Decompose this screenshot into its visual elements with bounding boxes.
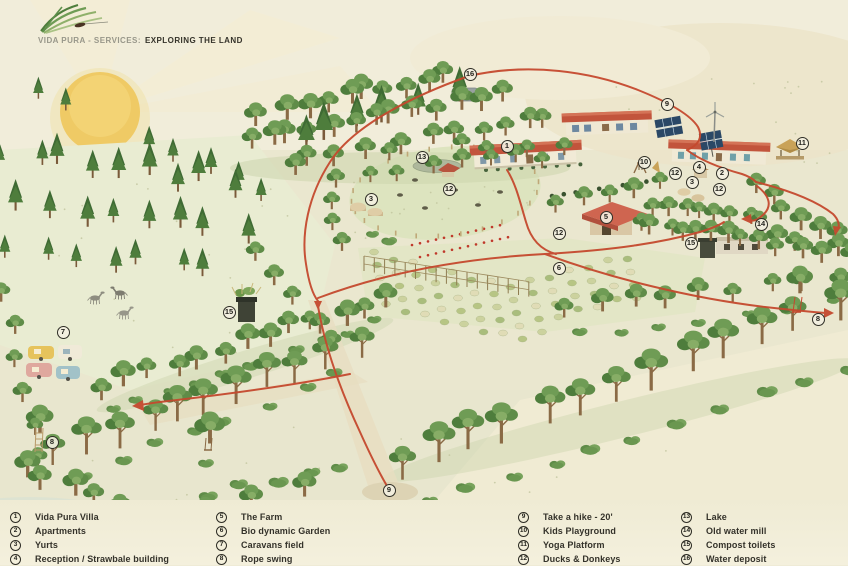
legend-item-11: 11Yoga Platform [518, 538, 621, 552]
legend-item-14: 14Old water mill [681, 524, 776, 538]
legend-number: 10 [518, 526, 529, 537]
legend-number: 16 [681, 554, 692, 565]
map-marker-15: 15 [223, 306, 236, 319]
map-marker-2: 2 [716, 167, 729, 180]
legend-number: 9 [518, 512, 529, 523]
services-building [562, 110, 653, 135]
legend-number: 3 [10, 540, 21, 551]
brand-prefix: VIDA PURA - SERVICES: [38, 36, 141, 45]
legend-label: Ducks & Donkeys [543, 554, 621, 564]
legend-column: 5The Farm6Bio dynamic Garden7Caravans fi… [216, 510, 330, 566]
map-marker-8: 8 [812, 313, 825, 326]
map-marker-10: 10 [638, 156, 651, 169]
legend-label: Apartments [35, 526, 86, 536]
legend-number: 8 [216, 554, 227, 565]
legend-item-4: 4Reception / Strawbale building [10, 552, 169, 566]
legend-label: Bio dynamic Garden [241, 526, 330, 536]
header: VIDA PURA - SERVICES:EXPLORING THE LAND [0, 0, 400, 55]
legend-label: Reception / Strawbale building [35, 554, 169, 564]
legend-item-6: 6Bio dynamic Garden [216, 524, 330, 538]
legend-label: Kids Playground [543, 526, 616, 536]
map-marker-12: 12 [669, 167, 682, 180]
legend-item-12: 12Ducks & Donkeys [518, 552, 621, 566]
map-marker-3: 3 [686, 176, 699, 189]
legend-column: 1Vida Pura Villa2Apartments3Yurts4Recept… [10, 510, 169, 566]
legend-number: 2 [10, 526, 21, 537]
map-marker-4: 4 [693, 161, 706, 174]
map-marker-14: 14 [755, 218, 768, 231]
legend-label: Yurts [35, 540, 58, 550]
brand-title: EXPLORING THE LAND [145, 36, 243, 45]
legend-item-16: 16Water deposit [681, 552, 776, 566]
illustrated-map [0, 0, 848, 565]
legend: 1Vida Pura Villa2Apartments3Yurts4Recept… [0, 510, 848, 565]
legend-number: 13 [681, 512, 692, 523]
legend-label: Lake [706, 512, 727, 522]
map-marker-13: 13 [416, 151, 429, 164]
map-marker-15: 15 [685, 237, 698, 250]
legend-number: 14 [681, 526, 692, 537]
legend-item-7: 7Caravans field [216, 538, 330, 552]
map-marker-9: 9 [383, 484, 396, 497]
map-marker-12: 12 [553, 227, 566, 240]
legend-number: 6 [216, 526, 227, 537]
legend-number: 15 [681, 540, 692, 551]
legend-label: Caravans field [241, 540, 304, 550]
legend-item-10: 10Kids Playground [518, 524, 621, 538]
map-marker-3: 3 [365, 193, 378, 206]
legend-number: 5 [216, 512, 227, 523]
legend-number: 4 [10, 554, 21, 565]
map-marker-5: 5 [600, 211, 613, 224]
map-marker-12: 12 [443, 183, 456, 196]
map-marker-7: 7 [57, 326, 70, 339]
legend-label: The Farm [241, 512, 282, 522]
legend-item-13: 13Lake [681, 510, 776, 524]
legend-item-8: 8Rope swing [216, 552, 330, 566]
map-marker-11: 11 [796, 137, 809, 150]
legend-item-2: 2Apartments [10, 524, 169, 538]
map-marker-12: 12 [713, 183, 726, 196]
map-marker-6: 6 [553, 262, 566, 275]
legend-item-3: 3Yurts [10, 538, 169, 552]
sun-core [69, 75, 131, 137]
legend-label: Take a hike - 20' [543, 512, 613, 522]
page-title: VIDA PURA - SERVICES:EXPLORING THE LAND [38, 36, 243, 45]
map-marker-9: 9 [661, 98, 674, 111]
map-marker-16: 16 [464, 68, 477, 81]
legend-item-1: 1Vida Pura Villa [10, 510, 169, 524]
legend-label: Vida Pura Villa [35, 512, 99, 522]
legend-label: Yoga Platform [543, 540, 605, 550]
legend-label: Rope swing [241, 554, 293, 564]
map-marker-8: 8 [46, 436, 59, 449]
legend-label: Compost toilets [706, 540, 776, 550]
legend-label: Old water mill [706, 526, 766, 536]
grass-logo-icon [34, 2, 116, 36]
legend-number: 11 [518, 540, 529, 551]
legend-item-5: 5The Farm [216, 510, 330, 524]
map-marker-1: 1 [501, 140, 514, 153]
legend-column: 9Take a hike - 20'10Kids Playground11Yog… [518, 510, 621, 566]
legend-number: 1 [10, 512, 21, 523]
legend-number: 7 [216, 540, 227, 551]
legend-label: Water deposit [706, 554, 766, 564]
legend-column: 13Lake14Old water mill15Compost toilets1… [681, 510, 776, 566]
legend-item-15: 15Compost toilets [681, 538, 776, 552]
legend-number: 12 [518, 554, 529, 565]
legend-item-9: 9Take a hike - 20' [518, 510, 621, 524]
